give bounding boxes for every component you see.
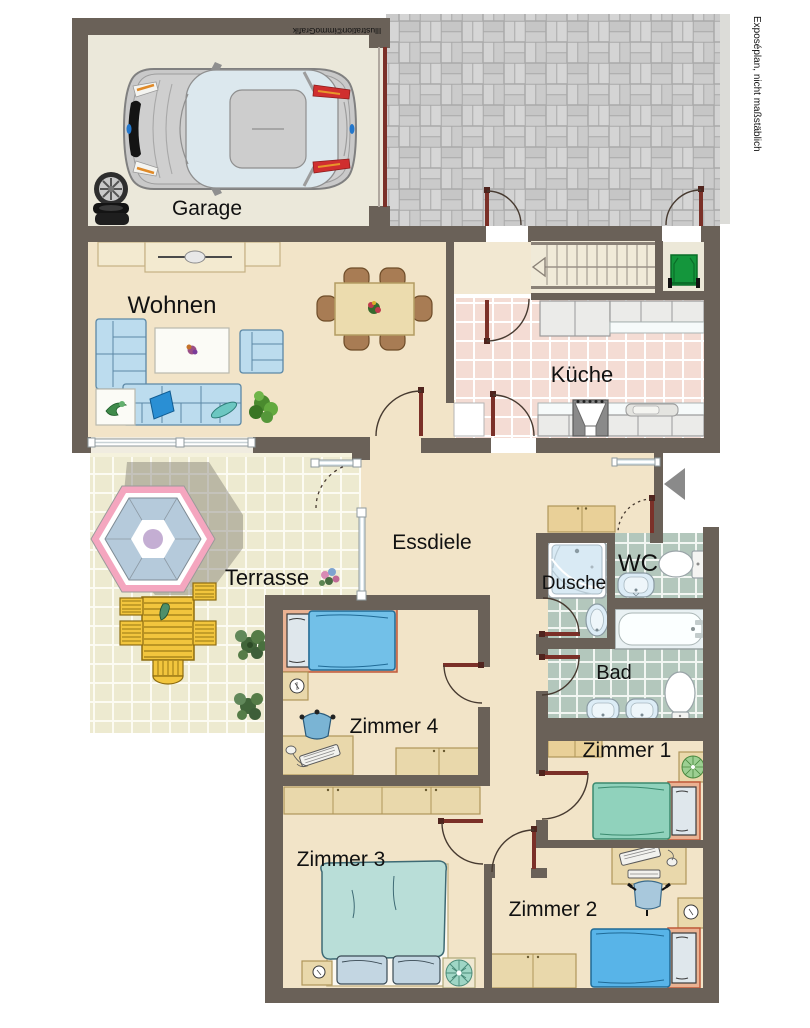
svg-text:Zimmer 4: Zimmer 4 [350, 715, 439, 738]
svg-text:Terrasse: Terrasse [225, 565, 309, 590]
svg-text:Bad: Bad [596, 662, 632, 684]
svg-text:Zimmer 1: Zimmer 1 [583, 739, 672, 762]
svg-text:Zimmer 3: Zimmer 3 [297, 848, 386, 871]
svg-text:Zimmer 2: Zimmer 2 [509, 898, 598, 921]
svg-text:WC: WC [618, 550, 658, 577]
svg-text:Wohnen: Wohnen [128, 292, 217, 319]
svg-text:Garage: Garage [172, 197, 242, 220]
svg-text:Illustration©immoGrafik: Illustration©immoGrafik [292, 26, 381, 36]
svg-text:Küche: Küche [551, 362, 613, 387]
svg-text:Dusche: Dusche [542, 573, 606, 594]
svg-text:Exposéplan, nicht maßstäblich: Exposéplan, nicht maßstäblich [751, 16, 762, 152]
svg-text:Essdiele: Essdiele [392, 531, 471, 554]
